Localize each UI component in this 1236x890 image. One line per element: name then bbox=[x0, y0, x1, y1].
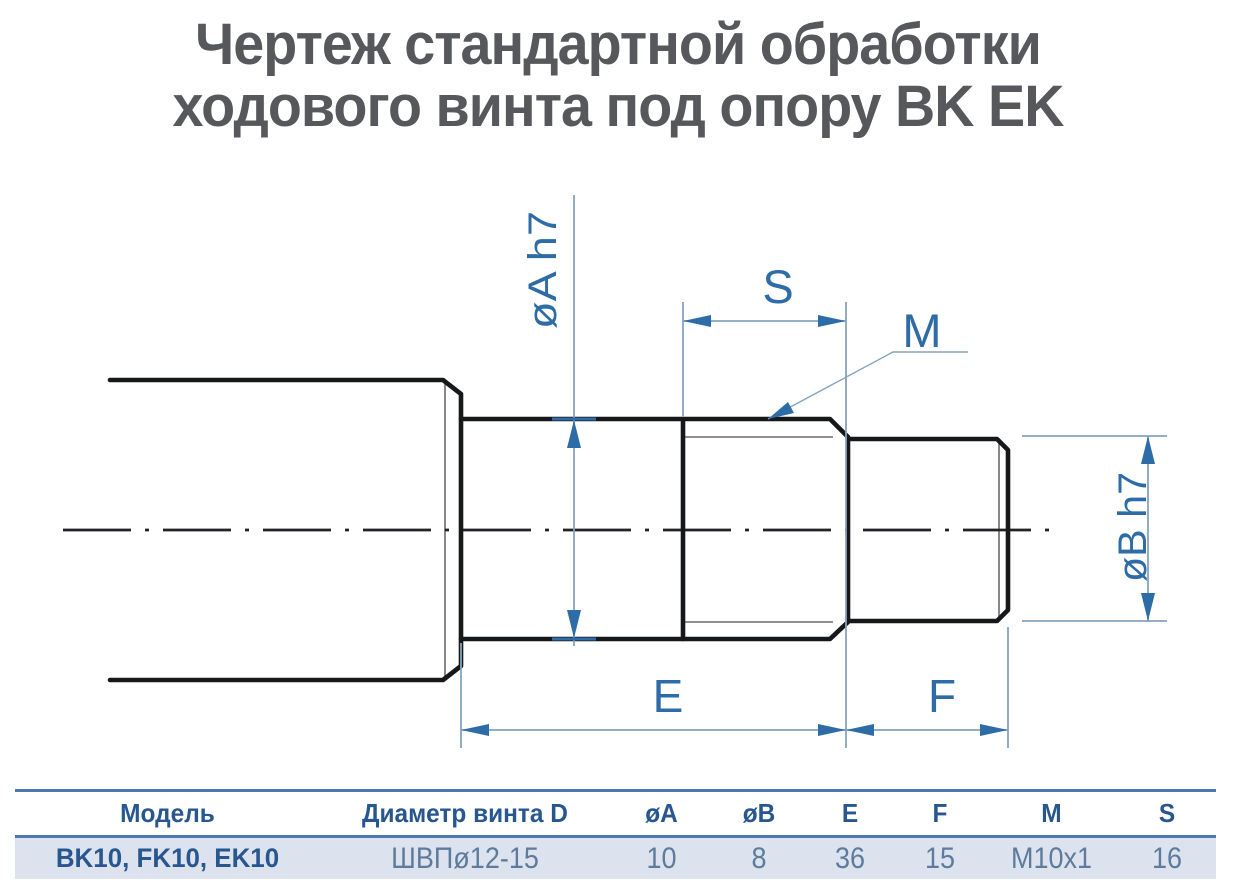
header-m: M bbox=[989, 798, 1114, 829]
dim-a-label: øA h7 bbox=[521, 211, 565, 329]
cell-model: BK10, FK10, EK10 bbox=[21, 843, 314, 874]
cell-m: M10x1 bbox=[992, 842, 1112, 876]
table-header-row: Модель Диаметр винта D øA øB E F M S bbox=[15, 792, 1216, 835]
header-dia-a: øA bbox=[613, 798, 710, 829]
cell-e: 36 bbox=[810, 842, 891, 876]
table-data-row: BK10, FK10, EK10 ШВПø12-15 10 8 36 15 M1… bbox=[15, 838, 1216, 879]
cell-screw-diameter: ШВПø12-15 bbox=[335, 842, 596, 876]
f-arrow-left bbox=[846, 724, 874, 736]
f-label: F bbox=[928, 670, 956, 722]
s-label: S bbox=[762, 260, 793, 313]
page-title-line1: Чертеж стандартной обработки bbox=[25, 14, 1212, 76]
header-e: E bbox=[808, 798, 893, 829]
page-title-line2: ходового винта под опору BK EK bbox=[25, 76, 1212, 138]
m-label: M bbox=[902, 304, 941, 357]
header-screw-diameter: Диаметр винта D bbox=[329, 798, 602, 829]
e-arrow-left bbox=[461, 724, 489, 736]
dim-b-arrow-up bbox=[1141, 436, 1155, 464]
f-arrow-right bbox=[980, 724, 1008, 736]
shaft-machining-drawing: øA h7 S M øB h7 E F bbox=[0, 170, 1236, 790]
header-model: Модель bbox=[24, 798, 311, 829]
specification-table: Модель Диаметр винта D øA øB E F M S BK1… bbox=[15, 789, 1216, 879]
e-label: E bbox=[653, 670, 684, 722]
header-s: S bbox=[1121, 798, 1213, 829]
e-arrow-right bbox=[818, 724, 846, 736]
s-arrow-left bbox=[683, 315, 711, 327]
s-arrow-right bbox=[818, 315, 846, 327]
dim-b-arrow-down bbox=[1141, 593, 1155, 621]
dim-b-label: øB h7 bbox=[1111, 472, 1155, 582]
cell-dia-b: 8 bbox=[718, 842, 801, 876]
cell-s: 16 bbox=[1123, 842, 1211, 876]
cell-dia-a: 10 bbox=[615, 842, 708, 876]
header-dia-b: øB bbox=[716, 798, 802, 829]
dimension-lines bbox=[461, 195, 1167, 748]
dim-a-arrow-up bbox=[567, 420, 581, 448]
header-f: F bbox=[898, 798, 983, 829]
m-leader-arrow bbox=[768, 402, 794, 419]
m-leader-line bbox=[768, 352, 968, 419]
dimension-labels: øA h7 S M øB h7 E F bbox=[521, 211, 1155, 722]
cell-f: 15 bbox=[900, 842, 981, 876]
dim-a-arrow-down bbox=[567, 610, 581, 638]
dimension-arrowheads bbox=[461, 315, 1155, 736]
page-title: Чертеж стандартной обработки ходового ви… bbox=[25, 14, 1212, 138]
